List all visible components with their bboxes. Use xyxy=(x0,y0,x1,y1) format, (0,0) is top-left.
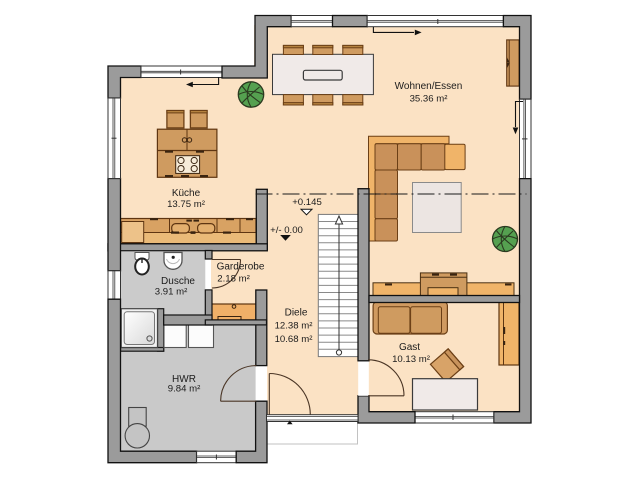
svg-text:+0.145: +0.145 xyxy=(292,197,322,208)
svg-text:Dusche: Dusche xyxy=(161,276,195,287)
svg-text:Diele: Diele xyxy=(285,308,308,319)
svg-text:35.36 m²: 35.36 m² xyxy=(410,94,449,105)
svg-text:10.68 m²: 10.68 m² xyxy=(275,334,314,345)
svg-text:3.91 m²: 3.91 m² xyxy=(155,287,188,298)
svg-text:10.13 m²: 10.13 m² xyxy=(392,354,431,365)
svg-text:Gast: Gast xyxy=(399,342,420,353)
svg-text:Garderobe: Garderobe xyxy=(217,262,265,273)
svg-text:Wohnen/Essen: Wohnen/Essen xyxy=(395,81,463,92)
svg-text:9.84 m²: 9.84 m² xyxy=(168,384,201,395)
svg-text:13.75 m²: 13.75 m² xyxy=(167,199,206,210)
svg-text:2.18 m²: 2.18 m² xyxy=(217,274,250,285)
svg-text:+/- 0.00: +/- 0.00 xyxy=(270,225,303,236)
svg-text:Küche: Küche xyxy=(172,188,201,199)
svg-text:12.38 m²: 12.38 m² xyxy=(275,321,314,332)
